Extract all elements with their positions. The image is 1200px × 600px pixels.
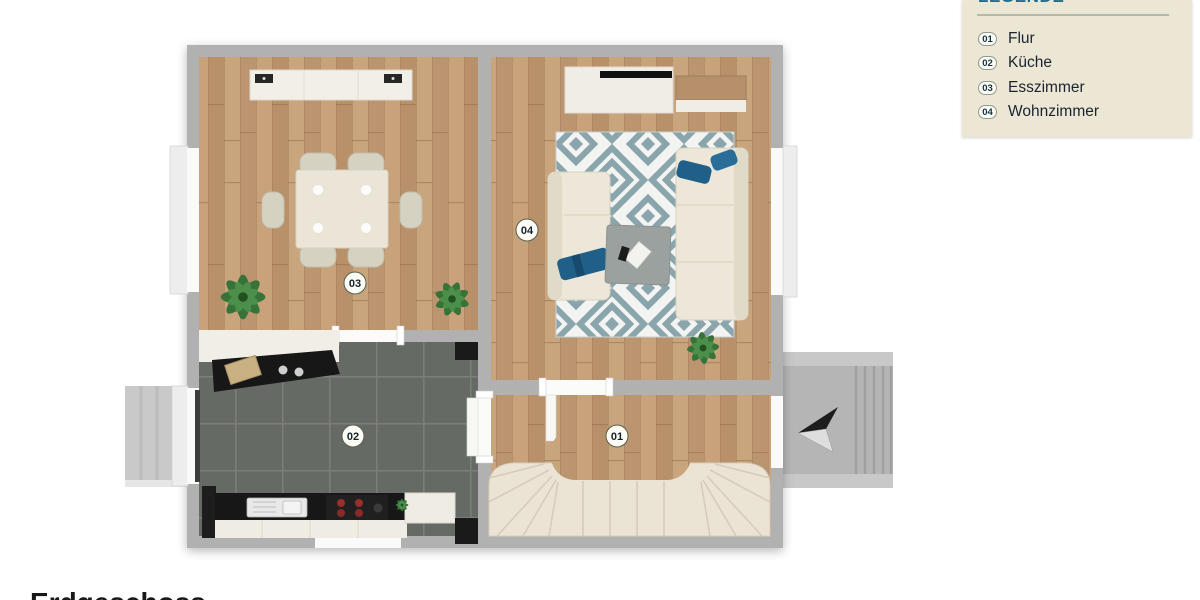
page-title: Erdgeschoss: [30, 587, 206, 600]
kitchen-sink: [247, 498, 307, 517]
legend-item-esszimmer: 03 Esszimmer: [978, 80, 1085, 96]
legend-badge-03: 03: [978, 81, 997, 95]
fridge: [455, 342, 478, 360]
sofa-left: [548, 172, 612, 300]
wall-shelf: [676, 76, 746, 100]
legend-badge-04: 04: [978, 105, 997, 119]
stove: [326, 495, 388, 520]
door-kueche-flur: [467, 391, 493, 463]
dining-table: [296, 170, 388, 248]
legend-panel: LEGENDE 01 Flur 02 Küche 03 Esszimmer 04…: [962, 0, 1192, 137]
window-esszimmer-left: [170, 146, 199, 294]
legend-label-kueche: Küche: [1008, 54, 1052, 72]
coffee-table: [605, 225, 671, 285]
legend-label-flur: Flur: [1008, 30, 1035, 48]
room-number: 01: [611, 431, 623, 443]
sofa-right: [675, 148, 748, 320]
legend-item-kueche: 02 Küche: [978, 55, 1052, 71]
plant: [221, 275, 266, 320]
legend-badge-02: 02: [978, 56, 997, 70]
legend-title: LEGENDE: [978, 0, 1064, 7]
legend-item-flur: 01 Flur: [978, 31, 1035, 47]
room-label-kueche: 02: [342, 425, 364, 447]
window-wohnzimmer-right: [771, 146, 797, 297]
room-label-esszimmer: 03: [344, 272, 366, 294]
legend-divider: [977, 14, 1169, 16]
door-entrance-right: [771, 396, 783, 468]
legend-item-wohnzimmer: 04 Wohnzimmer: [978, 104, 1099, 120]
door-kueche-terrace: [172, 386, 200, 486]
entrance-landing: [780, 352, 893, 488]
room-label-flur: 01: [606, 425, 628, 447]
floor-plan-page: 01 02 03 04 LEGENDE 01 Flur 02 Küche 03 …: [0, 0, 1200, 600]
room-number: 02: [347, 431, 359, 443]
room-number: 03: [349, 278, 361, 290]
room-label-wohnzimmer: 04: [516, 219, 538, 241]
legend-label-esszimmer: Esszimmer: [1008, 79, 1085, 97]
room-number: 04: [521, 225, 534, 237]
legend-badge-01: 01: [978, 32, 997, 46]
tv: [600, 71, 672, 78]
plant: [396, 499, 409, 512]
legend-label-wohnzimmer: Wohnzimmer: [1008, 103, 1099, 121]
